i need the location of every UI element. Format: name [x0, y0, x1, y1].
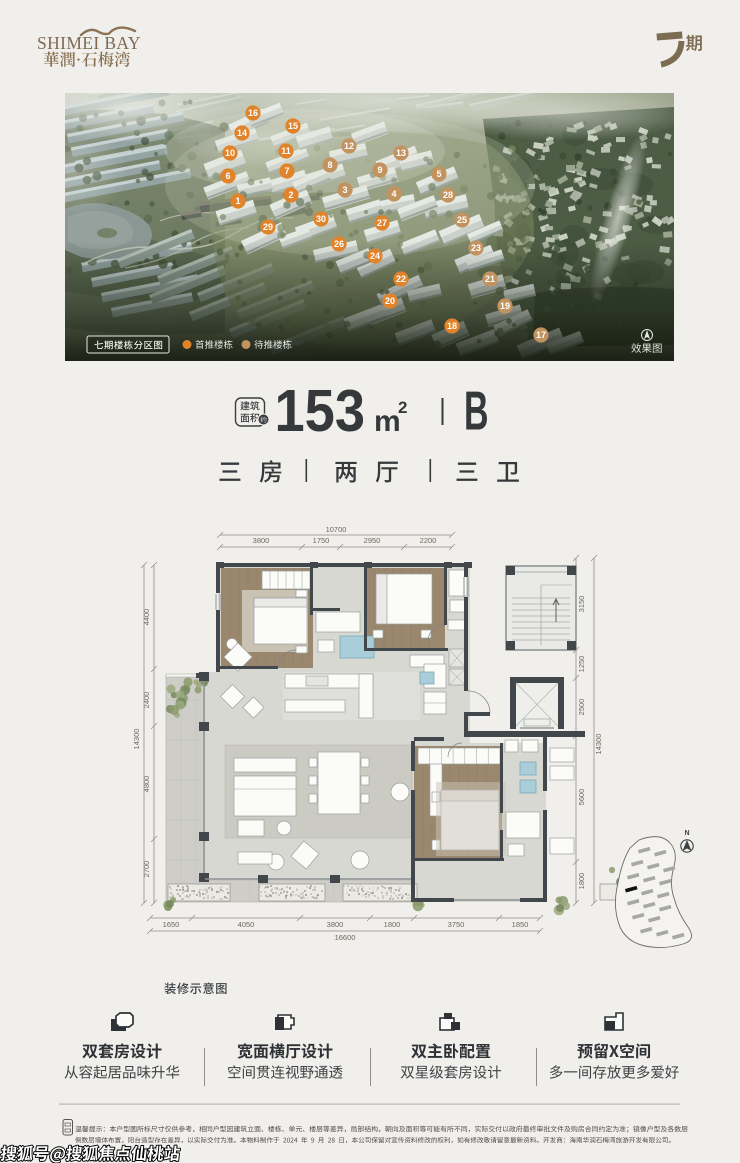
svg-text:13: 13	[396, 148, 406, 158]
svg-text:4: 4	[391, 189, 396, 199]
svg-text:28: 28	[443, 190, 453, 200]
svg-text:12: 12	[344, 141, 354, 151]
svg-text:SHIMEI BAY: SHIMEI BAY	[37, 33, 143, 53]
svg-text:2950: 2950	[364, 536, 381, 545]
svg-text:8: 8	[327, 160, 332, 170]
svg-text:2500: 2500	[577, 699, 586, 716]
svg-text:N: N	[684, 830, 689, 837]
svg-text:3800: 3800	[253, 536, 270, 545]
svg-text:20: 20	[385, 296, 395, 306]
svg-text:23: 23	[471, 243, 481, 253]
svg-text:2400: 2400	[142, 692, 151, 709]
svg-text:18: 18	[447, 321, 457, 331]
svg-text:4050: 4050	[238, 920, 255, 929]
svg-text:3750: 3750	[448, 920, 465, 929]
svg-text:16: 16	[248, 108, 258, 118]
svg-text:10700: 10700	[326, 525, 347, 534]
svg-text:2: 2	[288, 190, 293, 200]
svg-text:14300: 14300	[132, 729, 141, 750]
svg-text:2200: 2200	[420, 536, 437, 545]
svg-text:30: 30	[316, 214, 326, 224]
svg-text:1800: 1800	[577, 873, 586, 890]
svg-text:27: 27	[377, 218, 387, 228]
svg-text:m: m	[374, 405, 401, 438]
svg-text:1650: 1650	[163, 920, 180, 929]
svg-text:15: 15	[288, 121, 298, 131]
svg-text:2: 2	[398, 398, 407, 417]
svg-text:1850: 1850	[512, 920, 529, 929]
svg-text:4400: 4400	[142, 609, 151, 626]
svg-text:11: 11	[281, 146, 291, 156]
svg-text:6: 6	[225, 171, 230, 181]
svg-text:29: 29	[263, 222, 273, 232]
svg-text:10: 10	[225, 148, 235, 158]
svg-text:5: 5	[436, 169, 441, 179]
svg-text:5600: 5600	[577, 789, 586, 806]
svg-text:B: B	[464, 380, 489, 442]
svg-text:25: 25	[457, 215, 467, 225]
svg-text:1250: 1250	[577, 656, 586, 673]
svg-text:4800: 4800	[142, 776, 151, 793]
svg-text:153: 153	[275, 378, 366, 444]
svg-text:1: 1	[235, 196, 240, 206]
svg-text:21: 21	[485, 274, 495, 284]
svg-text:16600: 16600	[335, 933, 356, 942]
svg-text:14300: 14300	[594, 734, 603, 755]
svg-text:19: 19	[500, 301, 510, 311]
svg-text:24: 24	[370, 251, 380, 261]
svg-text:1750: 1750	[313, 536, 330, 545]
svg-text:3: 3	[342, 185, 347, 195]
svg-text:22: 22	[396, 274, 406, 284]
svg-text:17: 17	[536, 330, 546, 340]
svg-text:1800: 1800	[384, 920, 401, 929]
svg-text:3800: 3800	[327, 920, 344, 929]
svg-text:3150: 3150	[577, 596, 586, 613]
svg-text:7: 7	[284, 166, 289, 176]
svg-text:2700: 2700	[142, 861, 151, 878]
svg-text:9: 9	[377, 165, 382, 175]
svg-text:14: 14	[237, 128, 247, 138]
svg-text:26: 26	[334, 239, 344, 249]
